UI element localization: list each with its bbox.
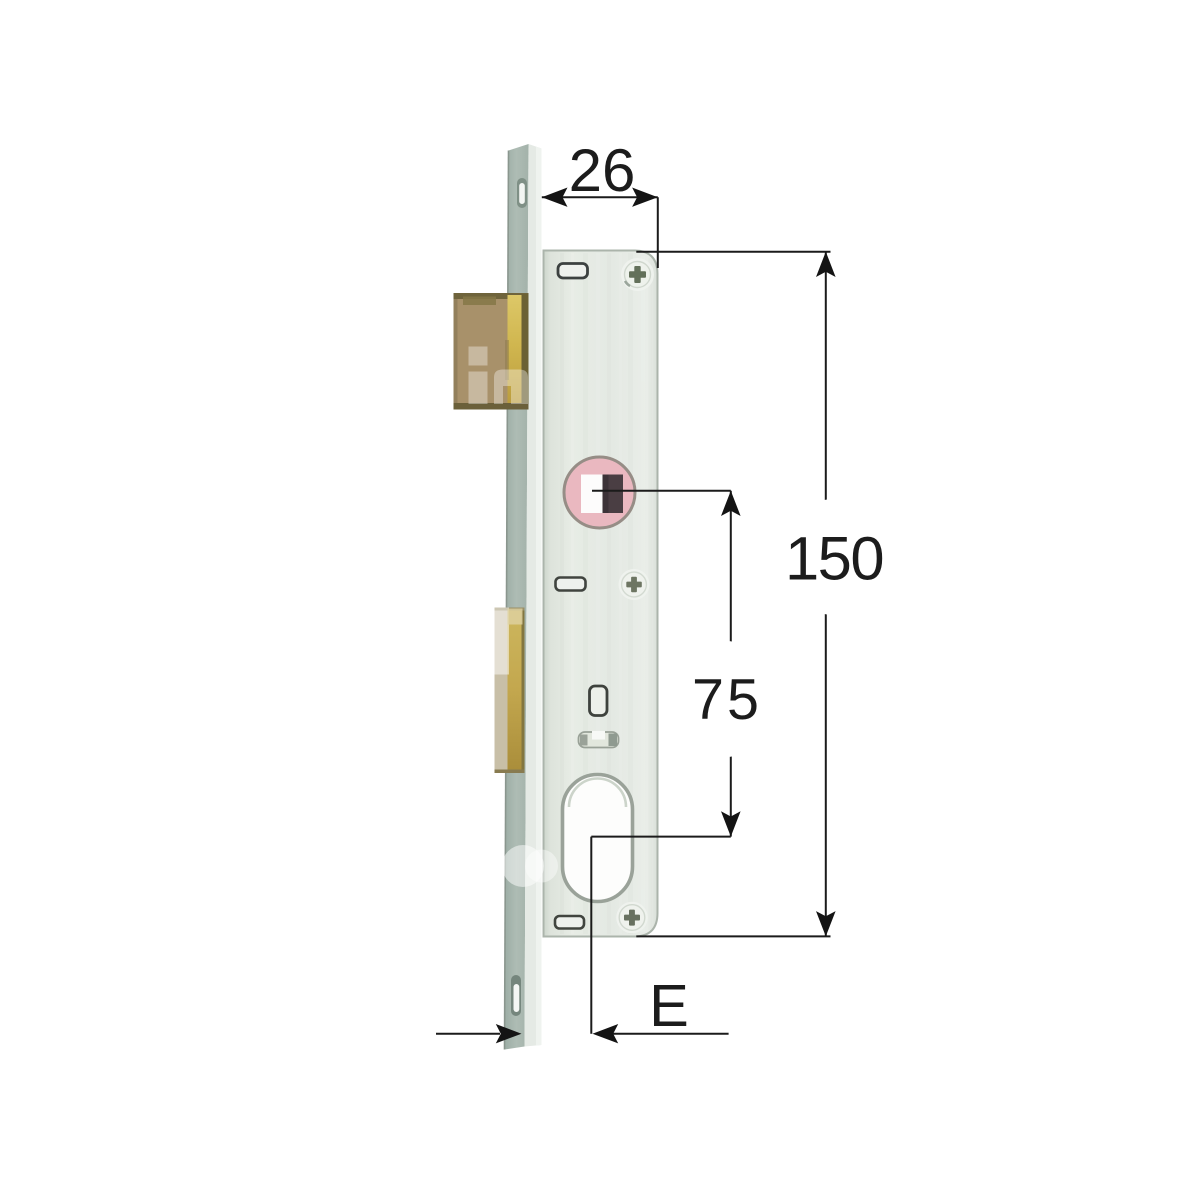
svg-text:26: 26 [569, 137, 636, 204]
svg-text:E: E [649, 972, 689, 1039]
svg-text:150: 150 [785, 525, 883, 594]
svg-text:75: 75 [692, 668, 762, 732]
